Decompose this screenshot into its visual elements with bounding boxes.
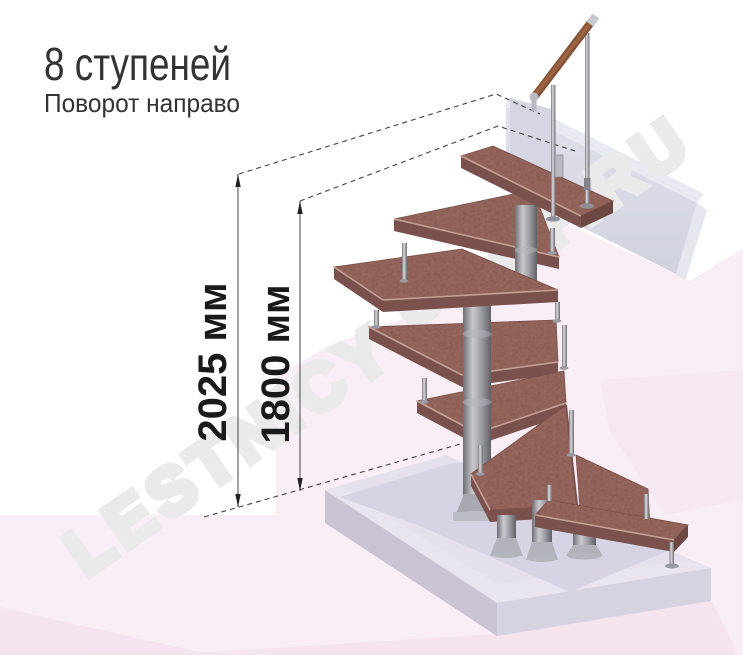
svg-text:2025 мм: 2025 мм xyxy=(191,282,235,441)
svg-text:Поворот направо: Поворот направо xyxy=(44,88,240,118)
svg-text:8 ступеней: 8 ступеней xyxy=(44,38,231,90)
svg-text:1800 мм: 1800 мм xyxy=(254,284,298,443)
